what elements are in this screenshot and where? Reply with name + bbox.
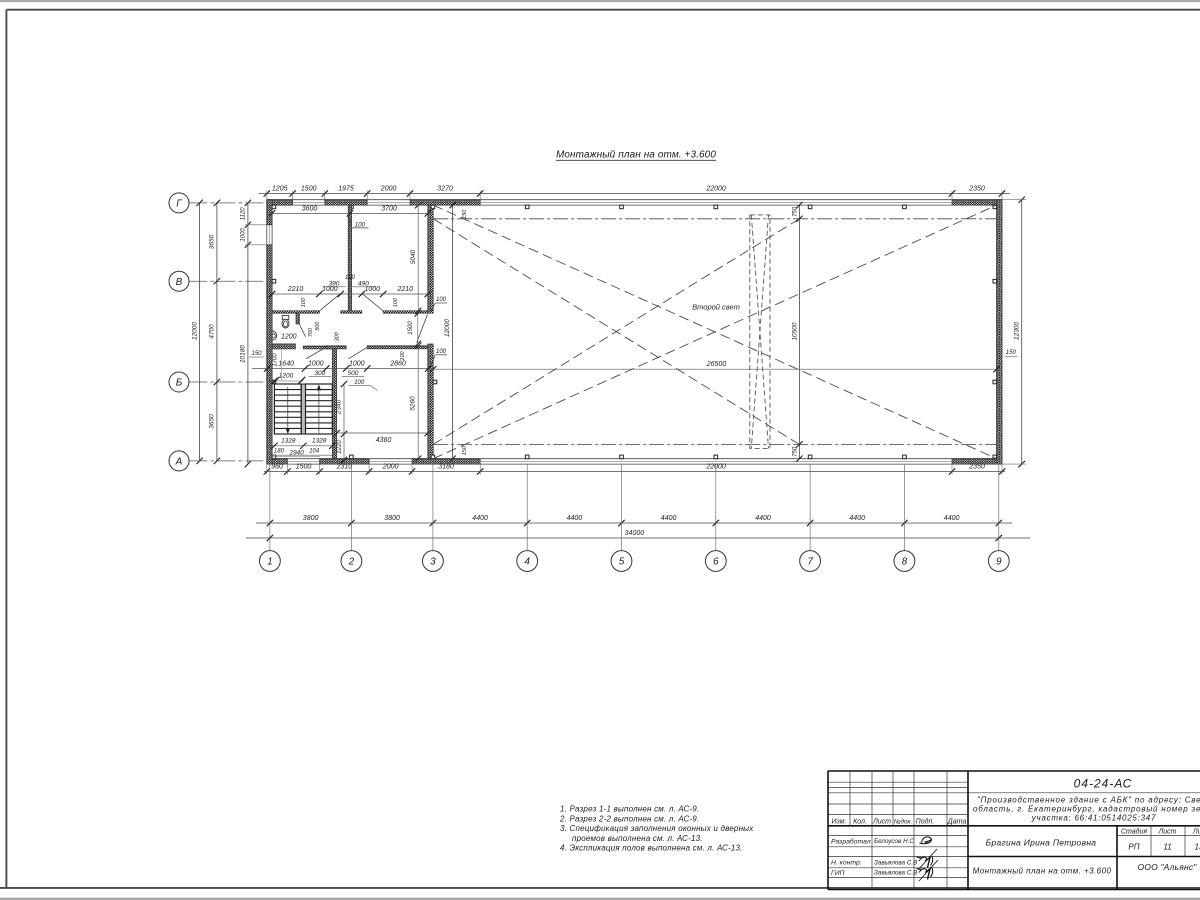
svg-text:104: 104 bbox=[309, 448, 320, 454]
svg-text:1640: 1640 bbox=[278, 360, 294, 367]
svg-text:500: 500 bbox=[315, 321, 321, 331]
svg-text:Лист: Лист bbox=[872, 818, 891, 825]
svg-text:12000: 12000 bbox=[444, 319, 451, 337]
svg-text:4. Экспликация полов выполнена: 4. Экспликация полов выполнена см. л. АС… bbox=[560, 844, 743, 853]
svg-text:750: 750 bbox=[793, 446, 799, 457]
svg-text:2: 2 bbox=[348, 557, 355, 568]
svg-text:4400: 4400 bbox=[661, 515, 677, 522]
svg-text:5040: 5040 bbox=[410, 249, 417, 264]
svg-text:4400: 4400 bbox=[849, 515, 865, 522]
svg-text:1220: 1220 bbox=[337, 440, 343, 454]
svg-text:Разработал: Разработал bbox=[831, 838, 871, 846]
svg-text:1000: 1000 bbox=[308, 360, 324, 367]
svg-text:5: 5 bbox=[619, 557, 625, 568]
svg-text:150: 150 bbox=[1006, 350, 1017, 356]
svg-text:Лист: Лист bbox=[1157, 828, 1176, 835]
svg-text:3650: 3650 bbox=[209, 234, 216, 249]
svg-text:Завьялова С.В: Завьялова С.В bbox=[874, 859, 917, 866]
svg-text:4400: 4400 bbox=[755, 515, 771, 522]
svg-text:1. Разрез 1-1 выполнен см. л.: 1. Разрез 1-1 выполнен см. л. АС-9. bbox=[560, 805, 699, 814]
svg-text:1205: 1205 bbox=[272, 186, 288, 193]
svg-text:РП: РП bbox=[1128, 843, 1139, 852]
svg-text:Брагина Ирина Петровна: Брагина Ирина Петровна bbox=[986, 837, 1097, 847]
svg-text:150: 150 bbox=[251, 351, 262, 357]
svg-text:11: 11 bbox=[1163, 843, 1171, 852]
svg-text:ГИП: ГИП bbox=[831, 870, 845, 877]
svg-text:3600: 3600 bbox=[302, 205, 318, 212]
svg-text:1200: 1200 bbox=[281, 333, 297, 340]
svg-text:3800: 3800 bbox=[303, 515, 319, 522]
svg-text:4400: 4400 bbox=[944, 515, 960, 522]
svg-text:1700: 1700 bbox=[272, 353, 278, 367]
svg-text:Изм.: Изм. bbox=[832, 818, 847, 825]
svg-text:2210: 2210 bbox=[287, 286, 304, 293]
svg-text:1500: 1500 bbox=[301, 186, 317, 193]
svg-text:участка: 66:41:0514025:347: участка: 66:41:0514025:347 bbox=[1031, 814, 1156, 823]
svg-text:область, г. Екатеринбург, када: область, г. Екатеринбург, кадастровый но… bbox=[973, 805, 1200, 814]
svg-text:2350: 2350 bbox=[968, 464, 985, 471]
svg-text:26500: 26500 bbox=[706, 361, 727, 368]
svg-text:3700: 3700 bbox=[381, 205, 397, 212]
svg-text:ООО "Альянс": ООО "Альянс" bbox=[1137, 862, 1197, 872]
svg-text:1328: 1328 bbox=[281, 438, 296, 445]
svg-text:2340: 2340 bbox=[336, 399, 343, 415]
svg-text:150: 150 bbox=[462, 209, 468, 219]
svg-text:750: 750 bbox=[793, 206, 799, 217]
svg-text:100: 100 bbox=[400, 350, 406, 360]
svg-text:3. Спецификация заполнения око: 3. Спецификация заполнения оконных и две… bbox=[560, 824, 754, 833]
svg-text:"Производственное здание с АБК: "Производственное здание с АБК" по адрес… bbox=[977, 796, 1200, 805]
svg-text:13: 13 bbox=[1195, 843, 1200, 852]
svg-text:Лис: Лис bbox=[1192, 828, 1200, 835]
svg-text:3650: 3650 bbox=[209, 414, 216, 429]
svg-text:8: 8 bbox=[902, 557, 908, 568]
svg-text:34000: 34000 bbox=[625, 530, 645, 537]
svg-text:700: 700 bbox=[308, 327, 314, 337]
svg-text:2. Разрез 2-2 выполнен см. л.: 2. Разрез 2-2 выполнен см. л. АС-9. bbox=[559, 814, 699, 823]
svg-text:3180: 3180 bbox=[438, 464, 454, 471]
svg-text:Белоусов Н.С: Белоусов Н.С bbox=[874, 838, 914, 845]
svg-text:Монтажный план на отм. +3.600: Монтажный план на отм. +3.600 bbox=[556, 150, 716, 161]
svg-text:10180: 10180 bbox=[240, 345, 247, 363]
svg-text:2000: 2000 bbox=[380, 186, 397, 193]
svg-text:Б: Б bbox=[176, 378, 183, 389]
svg-text:1000: 1000 bbox=[241, 228, 247, 242]
svg-text:4700: 4700 bbox=[209, 324, 216, 339]
svg-text:проемов выполнена см. л. АС-13: проемов выполнена см. л. АС-13. bbox=[572, 834, 703, 843]
svg-text:2210: 2210 bbox=[397, 286, 414, 293]
svg-text:В: В bbox=[176, 277, 183, 288]
svg-text:1200: 1200 bbox=[279, 372, 294, 379]
svg-text:6: 6 bbox=[713, 557, 719, 568]
svg-text:100: 100 bbox=[354, 380, 365, 386]
svg-text:3800: 3800 bbox=[384, 515, 400, 522]
svg-text:2000: 2000 bbox=[382, 464, 399, 471]
svg-text:960: 960 bbox=[271, 464, 283, 471]
svg-text:100: 100 bbox=[393, 297, 399, 307]
svg-text:1500: 1500 bbox=[408, 321, 414, 335]
svg-text:4: 4 bbox=[524, 557, 530, 568]
svg-text:4400: 4400 bbox=[472, 515, 488, 522]
svg-text:9: 9 bbox=[996, 557, 1002, 568]
svg-text:Монтажный план на отм. +3.600: Монтажный план на отм. +3.600 bbox=[973, 867, 1112, 876]
svg-text:100: 100 bbox=[436, 297, 447, 303]
svg-text:100: 100 bbox=[345, 275, 356, 281]
svg-text:Подп.: Подп. bbox=[916, 817, 935, 825]
svg-text:4360: 4360 bbox=[376, 437, 392, 444]
svg-text:180: 180 bbox=[274, 448, 285, 454]
svg-text:3270: 3270 bbox=[437, 186, 453, 193]
svg-text:1328: 1328 bbox=[312, 438, 327, 445]
svg-text:2310: 2310 bbox=[336, 464, 353, 471]
svg-text:1: 1 bbox=[267, 557, 273, 568]
svg-text:1120: 1120 bbox=[241, 207, 247, 221]
svg-text:12000: 12000 bbox=[191, 322, 198, 340]
svg-text:5260: 5260 bbox=[410, 396, 417, 411]
svg-text:1975: 1975 bbox=[338, 186, 354, 193]
svg-text:12300: 12300 bbox=[1013, 322, 1020, 340]
svg-text:Второй свет: Второй свет bbox=[692, 303, 740, 312]
svg-text:4400: 4400 bbox=[567, 515, 583, 522]
svg-text:22000: 22000 bbox=[705, 186, 726, 193]
svg-text:300: 300 bbox=[314, 370, 325, 377]
svg-text:А: А bbox=[175, 457, 183, 468]
svg-text:1500: 1500 bbox=[296, 464, 312, 471]
svg-text:2940: 2940 bbox=[288, 449, 304, 456]
svg-text:Стадия: Стадия bbox=[1121, 827, 1147, 835]
svg-text:300: 300 bbox=[335, 331, 341, 341]
svg-text:1000: 1000 bbox=[349, 360, 365, 367]
svg-text:390: 390 bbox=[329, 280, 340, 287]
svg-text:10500: 10500 bbox=[792, 322, 799, 340]
svg-text:04-24-АС: 04-24-АС bbox=[1074, 777, 1133, 791]
svg-text:150: 150 bbox=[462, 445, 468, 455]
svg-text:Завьялова С.В: Завьялова С.В bbox=[874, 870, 917, 877]
svg-text:2350: 2350 bbox=[968, 186, 985, 193]
svg-text:100: 100 bbox=[436, 349, 447, 355]
svg-text:№док.: №док. bbox=[894, 817, 913, 825]
svg-text:100: 100 bbox=[301, 297, 307, 307]
svg-text:100: 100 bbox=[355, 222, 366, 228]
svg-text:Кол.: Кол. bbox=[853, 818, 867, 825]
svg-text:3: 3 bbox=[430, 557, 436, 568]
svg-text:490: 490 bbox=[358, 280, 369, 287]
svg-text:500: 500 bbox=[347, 370, 358, 377]
svg-text:Дата: Дата bbox=[947, 818, 967, 825]
svg-text:7: 7 bbox=[807, 557, 813, 568]
svg-text:Н. контр.: Н. контр. bbox=[831, 860, 862, 867]
